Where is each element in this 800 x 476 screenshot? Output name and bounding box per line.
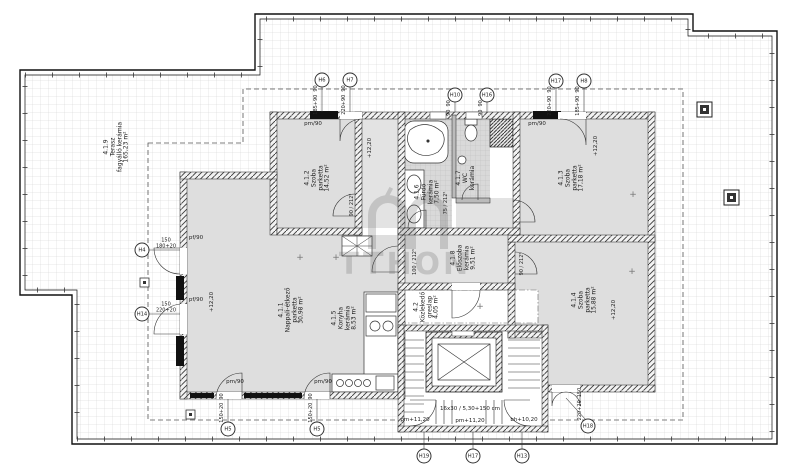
opening-marker: H5 <box>310 422 325 437</box>
level-label: +12,20 <box>593 136 599 156</box>
room-label-4-1-3: 4.1.3 Szoba parketta 17,18 m² <box>558 164 585 191</box>
stair-note: 16x30 / 5,30+150 cm <box>440 406 500 412</box>
opening-marker: H17 <box>549 74 564 89</box>
marker-id: H17 <box>551 78 562 84</box>
dim: 185+90 <box>313 95 319 115</box>
room-material: kerámia <box>469 166 476 190</box>
room-label-4-1-7: 4.1.7 WC kerámia <box>456 166 476 190</box>
opening-dims: 185+9090 <box>313 85 319 114</box>
opening-dims: 150+2090 <box>219 393 225 422</box>
opening-marker: H10 <box>448 88 463 103</box>
room-label-4-1-8: 4.1.8 Előszoba kerámia 9,51 m² <box>450 245 477 272</box>
door-label: pm/90 <box>528 121 546 127</box>
floor-plan: TTHON 4.1.1 Nappali-étkező parketta 30,9… <box>0 0 800 476</box>
opening-marker: H7 <box>343 73 358 88</box>
room-label-4-1-1: 4.1.1 Nappali-étkező parketta 30,98 m² <box>278 288 305 333</box>
room-label-4-1-2: 4.1.2 Szoba parketta 14,52 m² <box>304 164 331 191</box>
marker-id: H17 <box>468 453 479 459</box>
opening-marker: H8 <box>577 74 592 89</box>
marker-id: H16 <box>482 92 493 98</box>
marker-id: H13 <box>517 453 528 459</box>
door-spec: 75 / 212⁵ <box>443 192 449 215</box>
marker-id: H19 <box>419 453 430 459</box>
opening-dims: 220+20150 <box>577 388 583 421</box>
dim: 220+90 <box>547 96 553 116</box>
marker-id: H5 <box>224 426 231 432</box>
room-area: 14,52 m² <box>325 164 332 191</box>
opening-dims: 185+9090 <box>575 86 581 115</box>
opening-marker: H14 <box>135 307 150 322</box>
dim: 90 <box>308 393 314 399</box>
marker-id: H14 <box>137 311 148 317</box>
dim: 150 <box>577 388 583 398</box>
opening-dims: 9090 <box>478 100 484 116</box>
door-label: pm/90 <box>304 121 322 127</box>
opening-marker: H16 <box>480 88 495 103</box>
dim: 220+90 <box>341 95 347 115</box>
level-label: +12,20 <box>209 292 215 312</box>
dim: 185+90 <box>575 96 581 116</box>
opening-dims: 220+9090 <box>341 85 347 114</box>
marker-id: H5 <box>313 426 320 432</box>
room-area: 165,23 m² <box>124 122 131 172</box>
room-area: 17,18 m² <box>579 164 586 191</box>
room-area: 30,98 m² <box>299 288 306 333</box>
level-label: +12,20 <box>611 300 617 320</box>
room-label-4-2: 4.2 Közlekedő greslap 4,05 m² <box>413 292 440 322</box>
room-label-4-1-6: 4.1.6 Fürdő kerámia 7,50 m² <box>414 180 441 204</box>
room-area: 8,53 m² <box>352 306 359 330</box>
dim: 180+20 <box>156 244 176 250</box>
marker-id: H18 <box>583 423 594 429</box>
opening-marker: H13 <box>515 449 530 464</box>
survey-cross: + <box>628 267 636 277</box>
dim: 220+20 <box>577 400 583 420</box>
opening-marker: H5 <box>221 422 236 437</box>
door-label: pm/90 <box>226 379 244 385</box>
room-label-4-1-5: 4.1.5 Konyha kerámia 8,53 m² <box>331 306 358 330</box>
dim: 90 <box>446 110 452 116</box>
marker-id: H7 <box>346 77 353 83</box>
dim: 220+20 <box>156 308 176 314</box>
room-label-4-1-9: 4.1.9 Terasz fagyálló kerámia 165,23 m² <box>103 122 130 172</box>
marker-id: H4 <box>138 247 145 253</box>
door-label: pm/90 <box>314 379 332 385</box>
opening-marker: H17 <box>466 449 481 464</box>
dim: 150+20 <box>308 403 314 423</box>
dim: 90 <box>219 393 225 399</box>
door-label: pf/90 <box>189 235 203 241</box>
room-label-4-1-4: 4.1.4 Szoba parketta 15,88 m² <box>571 286 598 313</box>
room-area: 7,50 m² <box>435 180 442 204</box>
room-area: 15,88 m² <box>592 286 599 313</box>
marker-id: H8 <box>580 78 587 84</box>
opening-marker: H4 <box>135 243 150 258</box>
opening-dims: 9090 <box>446 100 452 116</box>
opening-dims: 150180+20 <box>156 239 176 250</box>
survey-cross: + <box>332 253 340 263</box>
survey-cross: + <box>629 190 637 200</box>
opening-marker: H6 <box>315 73 330 88</box>
elevator <box>426 330 502 392</box>
door-spec: 90 / 212⁵ <box>519 253 525 276</box>
marker-id: H10 <box>450 92 461 98</box>
opening-marker: H19 <box>417 449 432 464</box>
room-area: 4,05 m² <box>434 292 441 322</box>
room-area: 9,51 m² <box>471 245 478 272</box>
dim: 150+20 <box>219 403 225 423</box>
door-spec: 90 / 212⁵ <box>349 194 355 217</box>
opening-dims: 150+2090 <box>308 393 314 422</box>
stair-level-label: pm+11,20 <box>400 417 429 423</box>
door-label: pf/90 <box>189 297 203 303</box>
survey-cross: + <box>476 302 484 312</box>
opening-dims: 220+9090 <box>547 86 553 115</box>
survey-cross: + <box>296 253 304 263</box>
marker-id: H6 <box>318 77 325 83</box>
stair-level-label: pm+11,20 <box>455 418 484 424</box>
door-spec: 100 / 212⁵ <box>412 249 418 275</box>
opening-marker: H18 <box>581 419 596 434</box>
dim: 90 <box>478 110 484 116</box>
floor-plan-drawing <box>0 0 800 476</box>
level-label: +12,20 <box>367 138 373 158</box>
opening-dims: 150220+20 <box>156 303 176 314</box>
stair-level-label: bh+10,20 <box>510 417 537 423</box>
